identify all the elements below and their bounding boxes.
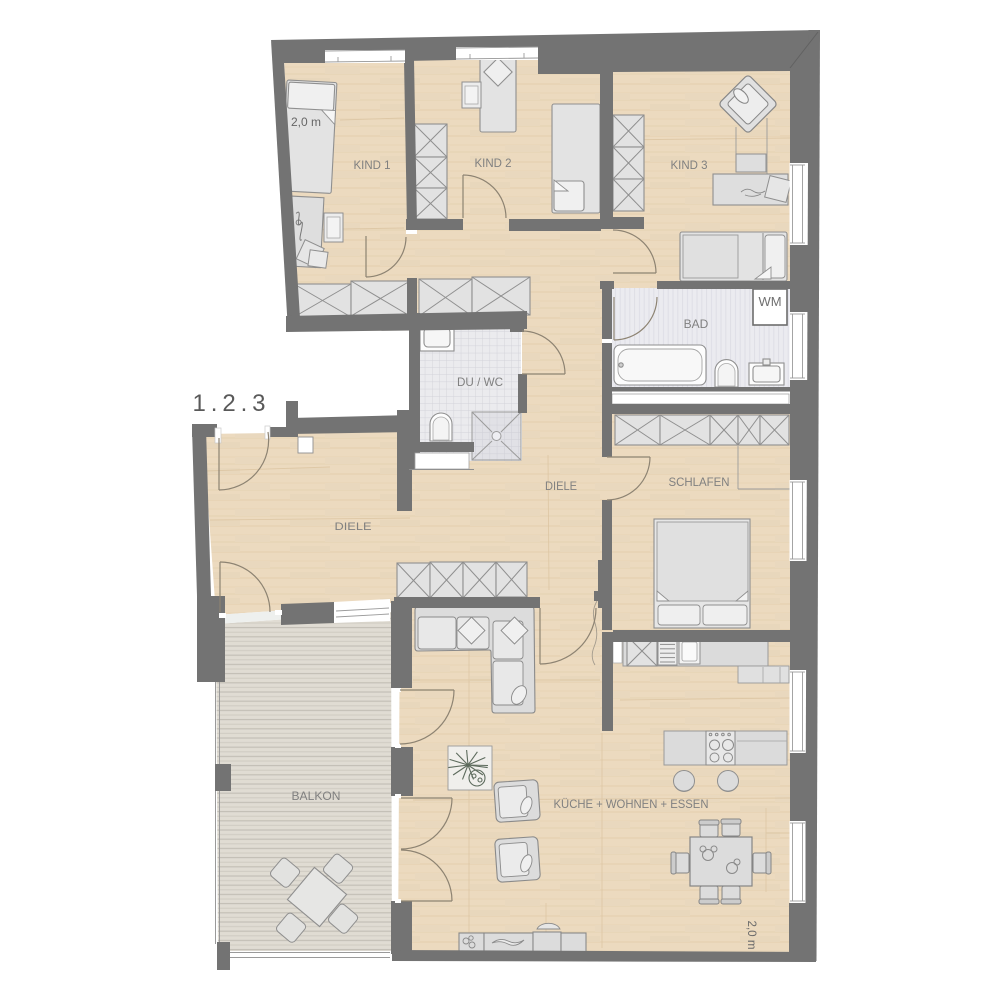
svg-text:BAD: BAD: [684, 317, 709, 331]
svg-text:DIELE: DIELE: [545, 479, 577, 493]
svg-text:WM: WM: [758, 294, 781, 309]
svg-text:KIND 3: KIND 3: [671, 158, 708, 172]
svg-text:KIND 2: KIND 2: [475, 156, 512, 170]
svg-text:SCHLAFEN: SCHLAFEN: [669, 475, 730, 489]
svg-text:DIELE: DIELE: [335, 521, 372, 533]
svg-text:2,0 m: 2,0 m: [745, 921, 757, 950]
svg-text:KÜCHE + WOHNEN + ESSEN: KÜCHE + WOHNEN + ESSEN: [554, 797, 709, 811]
svg-text:KIND 1: KIND 1: [354, 158, 391, 172]
svg-text:2,0 m: 2,0 m: [291, 115, 321, 129]
svg-text:BALKON: BALKON: [292, 789, 341, 803]
svg-text:1.2.3: 1.2.3: [193, 390, 266, 417]
svg-text:DU / WC: DU / WC: [457, 375, 503, 389]
